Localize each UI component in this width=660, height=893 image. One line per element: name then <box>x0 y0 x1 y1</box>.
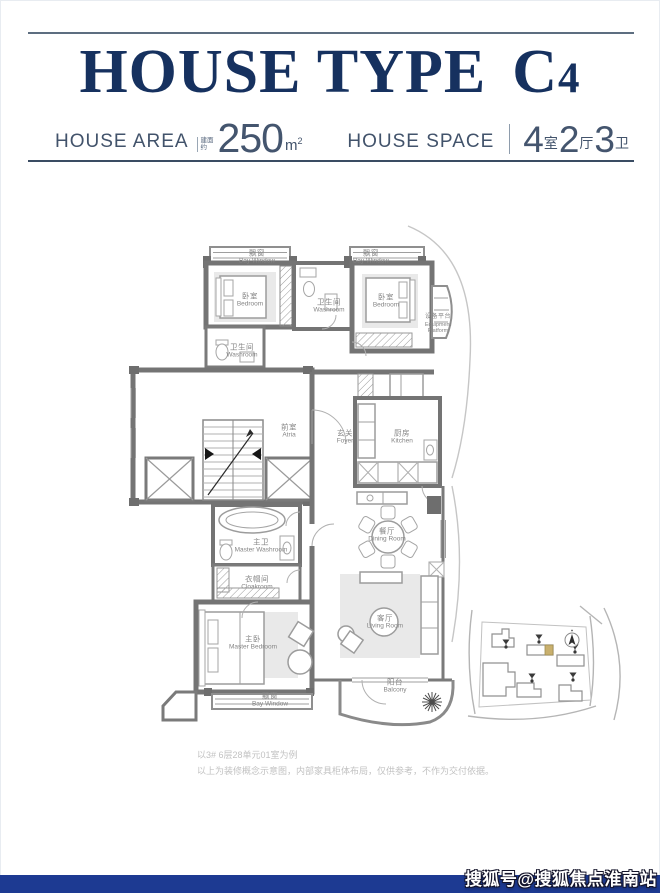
room-label-zh: 飘窗 <box>353 248 389 257</box>
room-label-bedroom-top-right: 卧室 Bedroom <box>373 292 399 310</box>
stairs <box>203 420 263 500</box>
room-label-zh: 阳台 <box>383 677 406 686</box>
room-label-en: Atria <box>281 432 297 440</box>
room-label-en: Cloakroom <box>241 584 272 592</box>
room-label-zh: 卫生间 <box>226 342 257 351</box>
site-map <box>468 606 620 720</box>
room-label-en: Washroom <box>226 352 257 360</box>
room-label-zh: 餐厅 <box>368 526 406 535</box>
note-line-2: 以上为装修概念示意图，内部家具柜体布局，仅供参考，不作为交付依据。 <box>197 763 494 779</box>
room-label-foyer: 玄关 Foyer <box>337 428 354 446</box>
room-label-master-washroom: 主卫 Master Washroom <box>235 537 288 555</box>
room-label-kitchen: 厨房 Kitchen <box>391 428 413 446</box>
sofa <box>421 576 438 654</box>
room-label-cloakroom: 衣帽间 Cloakroom <box>241 574 272 592</box>
master-bedroom <box>163 602 314 720</box>
room-label-en: Dining Room <box>368 536 406 544</box>
washroom-middle <box>294 263 352 329</box>
room-label-en: Living Room <box>367 623 403 631</box>
room-label-zh: 衣帽间 <box>241 574 272 583</box>
disclaimer-notes: 以3# 6层28单元01室为例 以上为装修概念示意图，内部家具柜体布局，仅供参考… <box>197 747 494 779</box>
room-label-zh: 玄关 <box>337 428 354 437</box>
room-label-bay-window-top-right: 飘窗 Bay Window <box>353 248 389 266</box>
highlighted-building <box>545 645 553 655</box>
room-label-en: Bedroom <box>373 302 399 310</box>
room-label-en: Master Bedroom <box>229 644 277 652</box>
room-label-en: Bay Window <box>353 258 389 266</box>
room-label-zh: 飘窗 <box>252 691 288 700</box>
north-arrow-icon <box>565 630 579 647</box>
room-label-bay-window-bottom: 飘窗 Bay Window <box>252 691 288 709</box>
room-label-zh: 飘窗 <box>239 248 275 257</box>
room-label-zh: 客厅 <box>367 613 403 622</box>
note-line-1: 以3# 6层28单元01室为例 <box>197 747 494 763</box>
room-label-en: Washroom <box>313 307 344 315</box>
room-label-equipment-platform: 设备平台 Equipment Platform <box>419 314 457 334</box>
master-washroom <box>213 505 300 565</box>
elevator-left <box>146 458 193 500</box>
room-label-en: Balcony <box>383 687 406 695</box>
room-label-en: Bay Window <box>252 701 288 709</box>
room-label-en: Master Washroom <box>235 547 288 555</box>
kitchen <box>355 398 440 504</box>
room-label-living-room: 客厅 Living Room <box>367 613 403 631</box>
room-label-washroom-middle: 卫生间 Washroom <box>313 297 344 315</box>
room-label-dining-room: 餐厅 Dining Room <box>368 526 406 544</box>
room-label-bay-window-top-left: 飘窗 Bay Window <box>239 248 275 266</box>
room-label-master-bedroom: 主卧 Master Bedroom <box>229 634 277 652</box>
room-label-zh: 主卫 <box>235 537 288 546</box>
room-label-zh: 设备平台 <box>419 314 457 322</box>
room-label-en: Kitchen <box>391 438 413 446</box>
room-label-zh: 厨房 <box>391 428 413 437</box>
elevator-right <box>266 458 313 500</box>
room-label-bedroom-top-left: 卧室 Bedroom <box>237 291 263 309</box>
room-label-balcony: 阳台 Balcony <box>383 677 406 695</box>
service-shaft <box>280 266 294 326</box>
room-label-zh: 卧室 <box>237 291 263 300</box>
room-label-en: Bay Window <box>239 258 275 266</box>
room-label-zh: 前室 <box>281 422 297 431</box>
living-room <box>312 572 452 704</box>
room-label-washroom-lower: 卫生间 Washroom <box>226 342 257 360</box>
watermark: 搜狐号@搜狐焦点淮南站 <box>465 865 657 890</box>
plant <box>422 692 442 712</box>
room-label-atria: 前室 Atria <box>281 422 297 440</box>
room-label-zh: 卫生间 <box>313 297 344 306</box>
room-label-zh: 主卧 <box>229 634 277 643</box>
house-type-poster: HOUSE TYPEC4 HOUSE AREA 建面约 250 m2 HOUSE… <box>0 0 660 893</box>
room-label-en: Foyer <box>337 438 354 446</box>
room-label-en: Equipment Platform <box>419 322 457 334</box>
room-label-en: Bedroom <box>237 301 263 309</box>
room-label-zh: 卧室 <box>373 292 399 301</box>
